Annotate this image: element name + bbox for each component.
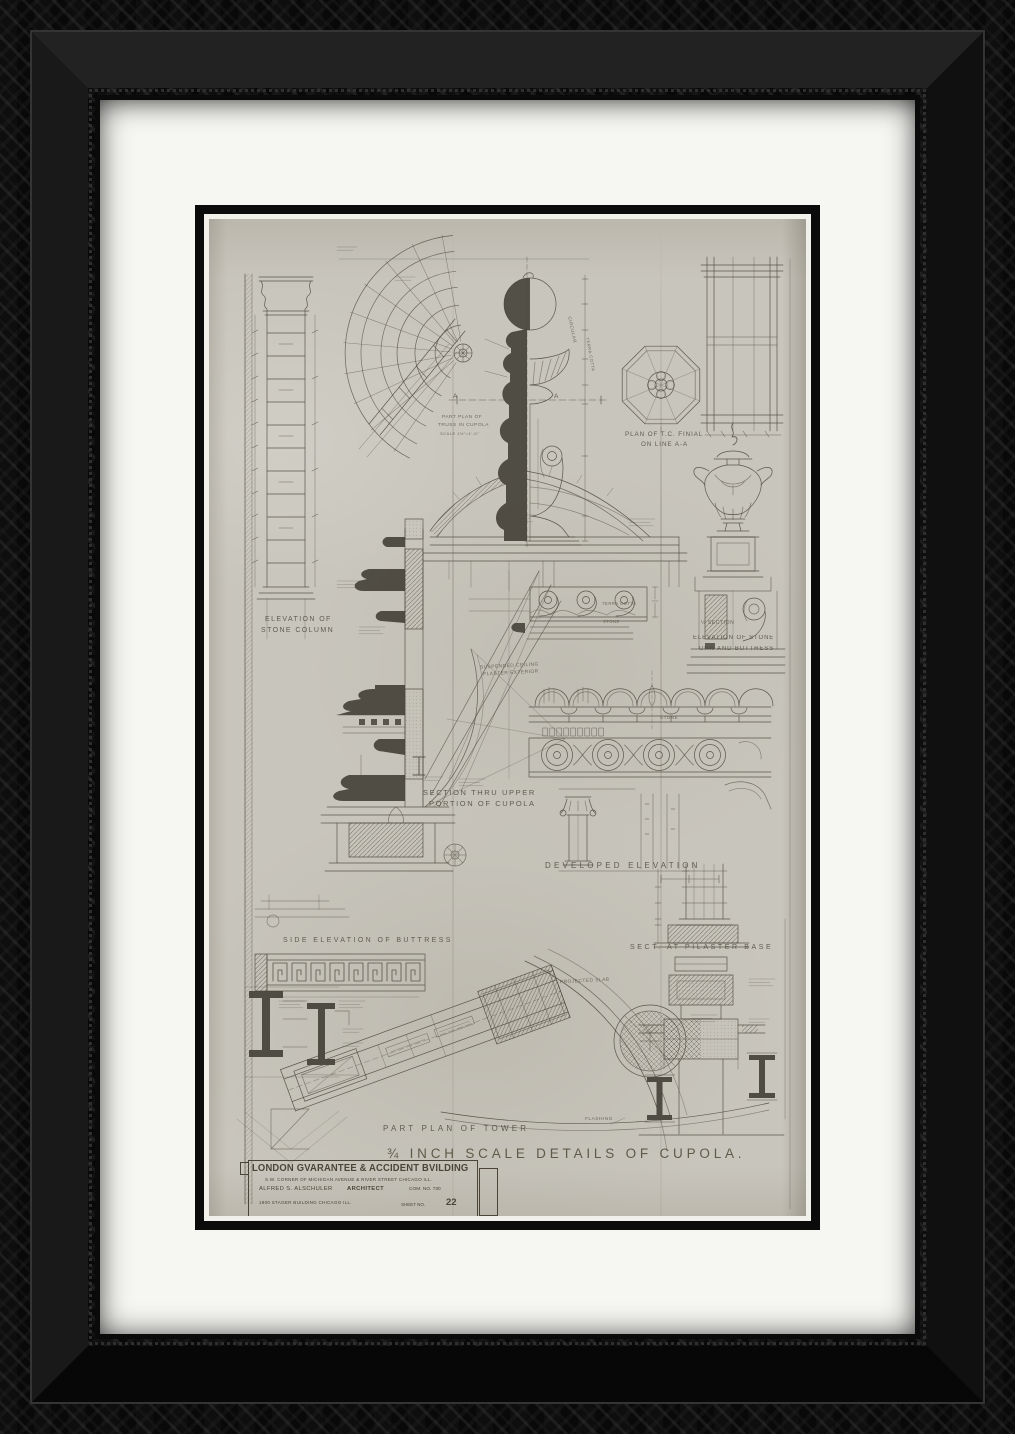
- title-block-sheet-label: SHEET NO.: [401, 1202, 425, 1207]
- label-plan-finial: PLAN OF T.C. FINIAL: [625, 431, 703, 439]
- print-border: PART PLAN OF TRUSS IN CUPOLA SCALE 1½"=1…: [195, 205, 820, 1230]
- label-part-plan-truss-2: TRUSS IN CUPOLA: [438, 423, 489, 429]
- title-block-annex-box: [479, 1168, 498, 1216]
- finial-section-elevation: [449, 257, 609, 549]
- label-plan-finial-2: ON LINE A-A: [641, 441, 688, 449]
- title-block-sheet-number: 22: [446, 1197, 457, 1208]
- label-elev-urn-2: URN AND BUTTRESS: [699, 646, 774, 654]
- arch-crest-band: [529, 671, 773, 729]
- title-block-stub-box: [240, 1162, 249, 1175]
- framed-architectural-drawing: PART PLAN OF TRUSS IN CUPOLA SCALE 1½"=1…: [0, 0, 1015, 1434]
- corner-pier-elevation: [701, 257, 783, 437]
- title-block-address: S.W. CORNER OF MICHIGAN AVENUE & RIVER S…: [265, 1177, 432, 1182]
- label-part-plan-truss: PART PLAN OF: [442, 415, 482, 421]
- title-block-architect: ALFRED S. ALSCHULER: [259, 1186, 333, 1192]
- label-half-section: ½ SECTION: [701, 620, 734, 627]
- section-mark-a-left: A: [453, 393, 459, 401]
- label-sect-pilaster-base: SECT. AT PILASTER BASE: [630, 943, 773, 952]
- title-block: LONDON GVARANTEE & ACCIDENT BVILDING S.W…: [248, 1160, 478, 1216]
- title-block-building: LONDON GVARANTEE & ACCIDENT BVILDING: [252, 1163, 468, 1174]
- title-block-architect-title: ARCHITECT: [347, 1186, 384, 1192]
- label-part-plan-truss-scale: SCALE 1½"=1'-0": [440, 431, 479, 436]
- title-block-office: 1900 STAGER BUILDING CHICAGO ILL.: [259, 1200, 352, 1205]
- label-section-upper: SECTION THRU UPPER: [423, 788, 536, 798]
- title-block-commission: COM. NO. 730: [409, 1187, 441, 1192]
- label-stone-2: STONE: [660, 715, 678, 721]
- label-elev-column-2: STONE COLUMN: [261, 626, 334, 635]
- label-flashing: FLASHING: [585, 1117, 613, 1123]
- drawing-linework: [209, 219, 806, 1216]
- pilaster-base-section: [654, 864, 749, 947]
- cupola-dome-section: [423, 467, 687, 591]
- label-elev-urn: ELEVATION OF STONE: [693, 635, 774, 643]
- drawing-sheet: PART PLAN OF TRUSS IN CUPOLA SCALE 1½"=1…: [209, 219, 806, 1216]
- cupola-wall-section: [321, 519, 679, 871]
- label-elev-column: ELEVATION OF: [265, 615, 332, 624]
- stone-column-elevation: [252, 277, 318, 639]
- label-terra-cotta: TERRA COTTA: [602, 601, 637, 606]
- label-part-plan-tower: PART PLAN OF TOWER: [383, 1124, 529, 1134]
- label-section-upper-2: PORTION OF CUPOLA: [429, 799, 536, 809]
- label-stone: STONE: [603, 619, 620, 624]
- scroll-frieze: [511, 587, 658, 639]
- label-side-elev-buttress: SIDE ELEVATION OF BUTTRESS: [283, 936, 453, 945]
- section-mark-a-right: A: [554, 393, 560, 401]
- greek-key-frieze: [255, 954, 425, 1008]
- fold-crease: [452, 219, 454, 1216]
- drawing-title: ¾ INCH SCALE DETAILS OF CUPOLA.: [387, 1146, 745, 1161]
- label-developed-elevation: DEVELOPED ELEVATION: [545, 861, 701, 871]
